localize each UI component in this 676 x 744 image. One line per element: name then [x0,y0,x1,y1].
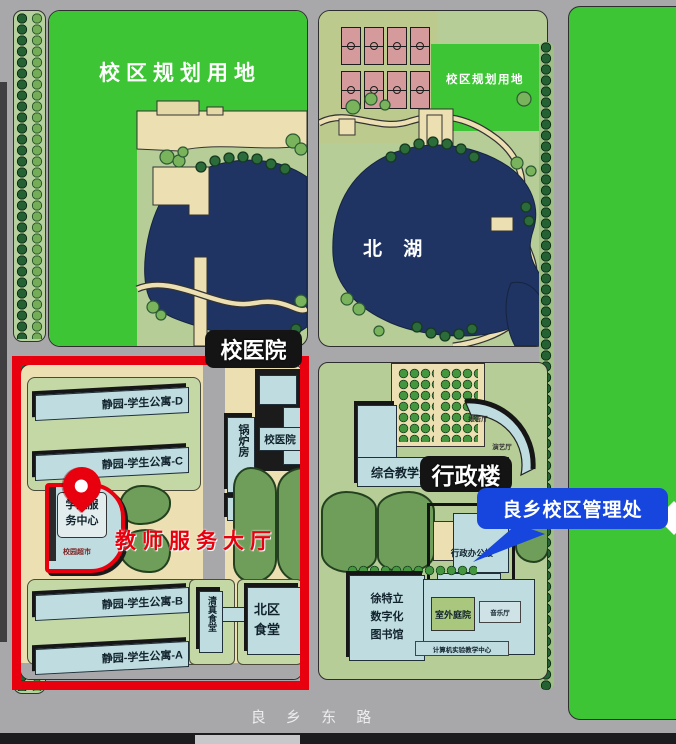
music-hall-label: 音乐厅 [480,602,520,622]
computer-center-label: 计算机实验教学中心 [416,642,508,655]
library-label-2: 数字化 [350,608,424,624]
student-center-edge [49,487,56,561]
library-label-3: 图书馆 [350,626,424,642]
north-lake-label: 北 湖 [363,238,430,260]
tree-strip-top-left [13,10,46,342]
computer-center: 计算机实验教学中心 [415,641,509,656]
block-top-right: 校区规划用地 北 湖 [318,10,548,347]
building-library: 徐特立 数字化 图书馆 [349,575,425,661]
bottom-bar [0,733,676,744]
courtyard-trees [398,368,434,442]
admin-building-tag: 行政楼 [420,456,512,492]
mgmt-tag-text: 良乡校区管理处 [502,495,642,522]
teacher-hall-label: 教师服务大厅 [115,527,303,553]
lake-pier [491,217,513,231]
tan-strip [137,111,307,151]
student-center-label-2: 务中心 [58,513,106,527]
planning-label-left: 校区规划用地 [85,59,275,85]
campus-art-right: 北 湖 [319,11,547,346]
road-edge-left [0,82,7,642]
library-label-1: 徐特立 [350,590,424,606]
tree-column-dark [15,13,29,339]
admin-tag-text: 行政楼 [432,457,501,491]
outdoor-courtyard: 室外庭院 [431,597,475,631]
bottom-bar-segment [195,735,300,744]
planning-field-east [568,6,676,720]
hedge [321,491,377,573]
mgmt-office-tag: 良乡校区管理处 [477,488,668,529]
lecture-hall-label: 报告厅 [463,413,493,422]
tree-column-light [30,13,43,339]
campus-map: 校区规划用地 校区规划用地 [0,0,676,744]
block-top-left: 校区规划用地 [48,10,308,347]
supermarket-label: 校园超市 [57,547,97,557]
south-road-label: 良 乡 东 路 [225,706,405,726]
hospital-tag: 校医院 [205,330,302,368]
outdoor-courtyard-label: 室外庭院 [432,598,474,630]
hospital-tag-text: 校医院 [220,333,286,365]
pier-path [194,257,207,346]
perf-hall-label: 演艺厅 [487,441,517,450]
music-hall: 音乐厅 [479,601,521,623]
